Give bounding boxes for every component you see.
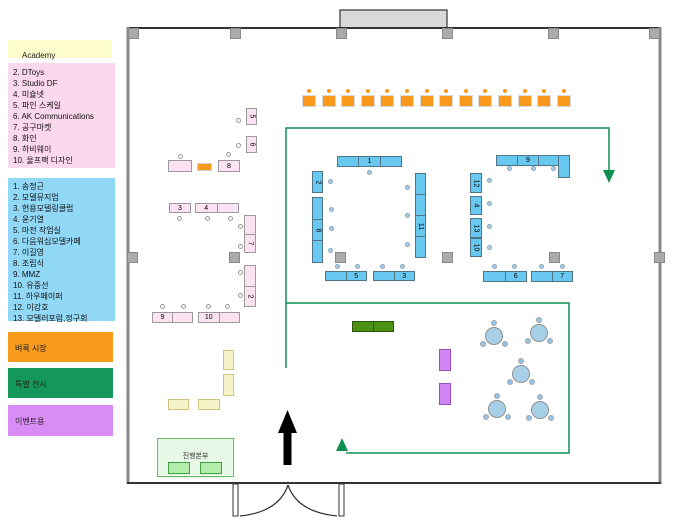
chair <box>236 143 241 148</box>
chair <box>487 245 492 250</box>
stall-seat-dot <box>366 89 370 93</box>
booth-cell: 6 <box>505 272 527 281</box>
booth-number: 10 <box>472 244 479 252</box>
booth-cell <box>440 384 450 404</box>
booth-cell <box>497 156 517 165</box>
booth-table: 9 <box>152 312 193 323</box>
round-table-seat <box>537 394 543 400</box>
chair <box>236 118 241 123</box>
chair <box>355 264 360 269</box>
legend-item-vendor: 8. 화인 <box>13 133 115 144</box>
legend-item-exhibitor: 8. 조립식 <box>13 258 115 269</box>
booth-number: 13 <box>472 224 479 232</box>
legend-blue-exhibitors: 1. 송정근2. 모델뮤지엄3. 현용모델링클럽4. 윤기열5. 마전 작업실6… <box>8 178 115 321</box>
booth-cell: 10 <box>199 313 219 322</box>
booth-cell <box>245 266 255 286</box>
chair <box>492 264 497 269</box>
chair <box>551 166 556 171</box>
stall-seat-dot <box>523 89 527 93</box>
booth-number: 9 <box>526 157 530 164</box>
legend-item-vendor: 4. 미슐넷 <box>13 89 115 100</box>
booth-table: 3 <box>373 271 415 281</box>
stall-seat-dot <box>425 89 429 93</box>
legend-item-vendor: 7. 공구마켓 <box>13 122 115 133</box>
booth-table: 7 <box>531 271 573 282</box>
round-table <box>485 327 503 345</box>
booth-table <box>168 160 192 172</box>
chair <box>329 207 334 212</box>
legend-academy: Academy <box>8 40 112 58</box>
booth-table: 1 <box>337 156 402 167</box>
chair <box>328 179 333 184</box>
legend-item-exhibitor: 2. 모델뮤지엄 <box>13 192 115 203</box>
booth-table <box>439 383 451 405</box>
market-stall <box>537 95 551 107</box>
booth-cell: 3 <box>170 204 190 212</box>
pillar <box>654 252 665 263</box>
pillar <box>442 28 453 39</box>
stage-block <box>340 10 447 28</box>
chair <box>160 304 165 309</box>
booth-cell <box>538 156 559 165</box>
booth-table <box>168 462 190 474</box>
legend-flea-market: 벼룩 시장 <box>8 332 113 362</box>
booth-cell <box>532 272 552 281</box>
booth-number: 11 <box>417 222 424 229</box>
legend-item-exhibitor: 1. 송정근 <box>13 181 115 192</box>
booth-number: 3 <box>178 205 182 212</box>
legend-item-exhibitor: 4. 윤기열 <box>13 214 115 225</box>
chair <box>405 213 410 218</box>
booth-cell <box>219 313 240 322</box>
round-table-seat <box>505 414 511 420</box>
legend-item-exhibitor: 3. 현용모델링클럽 <box>13 203 115 214</box>
market-stall <box>302 95 316 107</box>
round-table-seat <box>507 379 513 385</box>
booth-cell: 6 <box>247 137 256 152</box>
market-stall <box>478 95 492 107</box>
booth-cell <box>201 463 221 473</box>
chair <box>405 242 410 247</box>
pillar <box>442 252 453 263</box>
chair <box>177 216 182 221</box>
booth-cell: 4 <box>196 204 217 212</box>
pillar <box>127 252 138 263</box>
chair <box>205 216 210 221</box>
booth-number: 5 <box>354 273 358 280</box>
round-table-seat <box>548 415 554 421</box>
booth-number: 12 <box>472 179 479 187</box>
booth-cell: 2 <box>313 172 322 192</box>
chair <box>512 264 517 269</box>
legend-event-use-label: 이벤트용 <box>15 417 44 426</box>
market-stall <box>420 95 434 107</box>
stall-seat-dot <box>307 89 311 93</box>
chair <box>238 270 243 275</box>
chair <box>487 224 492 229</box>
legend-item-vendor: 3. Studio DF <box>13 78 115 89</box>
pillar <box>336 28 347 39</box>
chair <box>226 152 231 157</box>
booth-table <box>198 399 220 410</box>
booth-cell <box>559 156 569 177</box>
round-table-seat <box>525 338 531 344</box>
booth-number: 6 <box>248 143 255 147</box>
booth-table <box>558 155 570 178</box>
booth-table: 3 <box>169 203 191 213</box>
chair <box>238 224 243 229</box>
legend-item-exhibitor: 12. 이강호 <box>13 302 115 313</box>
legend-item-vendor: 6. AK Communications <box>13 111 115 122</box>
market-stall <box>557 95 571 107</box>
booth-cell <box>224 375 233 395</box>
legend-item-exhibitor: 6. 다음워십모델카페 <box>13 236 115 247</box>
round-table-seat <box>483 414 489 420</box>
chair <box>487 178 492 183</box>
market-stall <box>498 95 512 107</box>
round-table-seat <box>547 338 553 344</box>
pillar <box>229 252 240 263</box>
booth-cell <box>416 194 425 215</box>
booth-cell <box>416 236 425 257</box>
legend-item-exhibitor: 9. MMZ <box>13 269 115 280</box>
round-table-seat <box>526 415 532 421</box>
booth-number: 7 <box>247 241 254 245</box>
booth-cell: 3 <box>394 272 415 280</box>
pillar <box>548 28 559 39</box>
booth-table <box>200 462 222 474</box>
market-stall <box>361 95 375 107</box>
booth-number: 9 <box>161 314 165 321</box>
booth-cell: 2 <box>245 286 255 307</box>
booth-table: 6 <box>483 271 527 282</box>
booth-cell <box>169 463 189 473</box>
market-stall <box>322 95 336 107</box>
chair <box>178 154 183 159</box>
booth-cell <box>373 322 394 331</box>
booth-table: 5 <box>246 108 257 125</box>
booth-cell <box>326 272 346 280</box>
legend-pink-vendors: 2. DToys3. Studio DF4. 미슐넷5. 파인 스케일6. AK… <box>8 63 115 168</box>
booth-cell <box>169 161 191 171</box>
booth-cell <box>217 204 239 212</box>
legend-item-vendor: 5. 파인 스케일 <box>13 100 115 111</box>
market-stall <box>341 95 355 107</box>
chair <box>507 166 512 171</box>
legend-item-exhibitor: 7. 이길영 <box>13 247 115 258</box>
booth-cell <box>198 164 211 170</box>
legend-item-exhibitor: 5. 마전 작업실 <box>13 225 115 236</box>
operations-hq-label: 진행본부 <box>158 451 233 461</box>
legend-special-exhibit-label: 특별 전시 <box>15 380 47 389</box>
chair <box>560 264 565 269</box>
booth-number: 3 <box>402 273 406 280</box>
chair <box>380 264 385 269</box>
booth-number: 6 <box>514 273 518 280</box>
booth-cell: 5 <box>346 272 367 280</box>
booth-table: 6 <box>246 136 257 153</box>
exhibition-floorplan: Academy 2. DToys3. Studio DF4. 미슐넷5. 파인 … <box>0 0 675 527</box>
chair <box>487 201 492 206</box>
booth-number: 8 <box>227 163 231 170</box>
booth-table <box>352 321 394 332</box>
stall-seat-dot <box>327 89 331 93</box>
pillar <box>649 28 660 39</box>
booth-cell: 12 <box>471 174 481 192</box>
chair <box>405 185 410 190</box>
booth-table: 5 <box>325 271 367 281</box>
booth-number: 2 <box>247 294 254 298</box>
chair <box>335 264 340 269</box>
legend-item-exhibitor: 11. 하우페이퍼 <box>13 291 115 302</box>
round-table <box>531 401 549 419</box>
booth-table: 4 <box>195 203 239 213</box>
booth-cell: 9 <box>153 313 172 322</box>
booth-cell: 1 <box>358 157 379 166</box>
booth-table: 4 <box>470 196 482 215</box>
booth-table <box>439 349 451 371</box>
round-table-seat <box>518 358 524 364</box>
booth-cell: 5 <box>247 109 256 124</box>
pillar <box>335 252 346 263</box>
market-stall <box>400 95 414 107</box>
chair <box>329 226 334 231</box>
booth-cell <box>374 272 394 280</box>
booth-cell <box>245 216 255 234</box>
round-table <box>488 400 506 418</box>
chair <box>181 304 186 309</box>
booth-cell <box>169 400 188 409</box>
booth-cell <box>313 240 322 262</box>
pillar <box>549 252 560 263</box>
booth-cell <box>313 198 322 219</box>
booth-cell: 4 <box>471 197 481 214</box>
booth-cell <box>353 322 373 331</box>
booth-cell: 9 <box>517 156 538 165</box>
booth-table: 10 <box>470 238 482 257</box>
booth-cell <box>199 400 219 409</box>
booth-table <box>223 374 234 396</box>
booth-table: 2 <box>312 171 323 193</box>
chair <box>539 264 544 269</box>
market-stall <box>459 95 473 107</box>
chair <box>400 264 405 269</box>
booth-cell <box>380 157 401 166</box>
stall-seat-dot <box>503 89 507 93</box>
chair <box>367 170 372 175</box>
booth-table: 2 <box>244 265 256 307</box>
booth-cell: 13 <box>471 219 481 237</box>
market-stall <box>439 95 453 107</box>
booth-cell <box>224 351 233 369</box>
stall-seat-dot <box>464 89 468 93</box>
booth-table: 13 <box>470 218 482 238</box>
booth-number: 7 <box>560 273 564 280</box>
chair <box>225 304 230 309</box>
round-table-seat <box>480 341 486 347</box>
round-table <box>530 324 548 342</box>
booth-number: 10 <box>205 314 213 321</box>
booth-cell <box>172 313 192 322</box>
stall-seat-dot <box>562 89 566 93</box>
booth-table: 9 <box>496 155 560 166</box>
chair <box>531 166 536 171</box>
legend-item-vendor: 2. DToys <box>13 67 115 78</box>
booth-table <box>168 399 189 410</box>
booth-number: 5 <box>248 115 255 119</box>
legend-event-use: 이벤트용 <box>8 405 113 436</box>
booth-cell <box>440 350 450 370</box>
booth-table: 8 <box>218 160 240 172</box>
chair <box>228 216 233 221</box>
booth-table: 8 <box>312 197 323 263</box>
chair <box>238 244 243 249</box>
booth-cell: 8 <box>219 161 239 171</box>
round-table-seat <box>502 341 508 347</box>
round-table-seat <box>494 393 500 399</box>
booth-number: 8 <box>314 228 321 232</box>
booth-table: 10 <box>198 312 240 323</box>
booth-cell: 7 <box>552 272 573 281</box>
round-table-seat <box>529 379 535 385</box>
booth-number: 1 <box>368 158 372 165</box>
booth-table <box>197 163 212 171</box>
legend-flea-market-label: 벼룩 시장 <box>15 344 47 353</box>
booth-table: 7 <box>244 215 256 253</box>
legend-item-exhibitor: 13. 모델러포럼,정구회 <box>13 313 115 324</box>
booth-number: 4 <box>473 204 480 208</box>
chair <box>238 293 243 298</box>
booth-cell <box>416 174 425 194</box>
legend-academy-label: Academy <box>22 51 55 60</box>
legend-item-exhibitor: 10. 유중선 <box>13 280 115 291</box>
booth-cell: 10 <box>471 239 481 256</box>
market-stall <box>518 95 532 107</box>
legend-item-vendor: 10. 울프팩 디자인 <box>13 155 115 166</box>
booth-cell <box>484 272 505 281</box>
legend-special-exhibit: 특별 전시 <box>8 368 113 398</box>
booth-number: 2 <box>314 180 321 184</box>
legend-item-vendor: 9. 하비웨이 <box>13 144 115 155</box>
entrance-arrow <box>278 410 297 465</box>
booth-table <box>223 350 234 370</box>
round-table <box>512 365 530 383</box>
market-stall <box>380 95 394 107</box>
round-table-seat <box>491 320 497 326</box>
chair <box>206 304 211 309</box>
booth-table: 11 <box>415 173 426 258</box>
pillar <box>128 28 139 39</box>
chair <box>328 248 333 253</box>
booth-table: 12 <box>470 173 482 193</box>
round-table-seat <box>536 317 542 323</box>
entrance-door <box>233 484 344 516</box>
booth-number: 4 <box>204 205 208 212</box>
stall-seat-dot <box>405 89 409 93</box>
booth-cell: 7 <box>245 234 255 253</box>
booth-cell: 11 <box>416 215 425 236</box>
booth-cell: 8 <box>313 219 322 241</box>
pillar <box>230 28 241 39</box>
booth-cell <box>338 157 358 166</box>
